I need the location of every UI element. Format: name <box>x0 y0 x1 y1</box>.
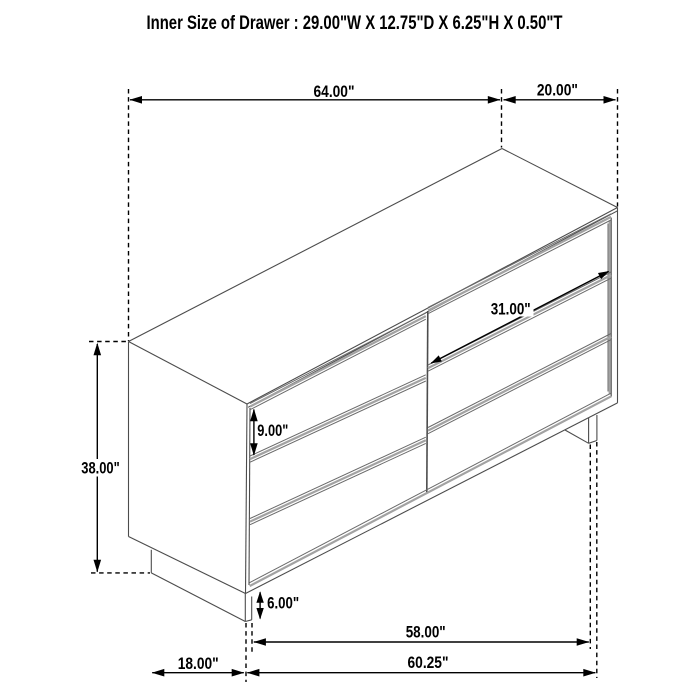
svg-text:9.00": 9.00" <box>257 422 288 440</box>
svg-text:38.00": 38.00" <box>81 459 120 477</box>
svg-text:18.00": 18.00" <box>178 655 219 673</box>
svg-text:Inner Size of Drawer : 29.00"W: Inner Size of Drawer : 29.00"W X 12.75"D… <box>147 12 563 34</box>
svg-text:31.00": 31.00" <box>491 300 531 318</box>
svg-text:64.00": 64.00" <box>314 83 355 101</box>
svg-text:20.00": 20.00" <box>537 82 578 100</box>
svg-text:6.00": 6.00" <box>267 595 299 613</box>
svg-text:58.00": 58.00" <box>406 623 446 641</box>
svg-text:60.25": 60.25" <box>408 654 449 672</box>
